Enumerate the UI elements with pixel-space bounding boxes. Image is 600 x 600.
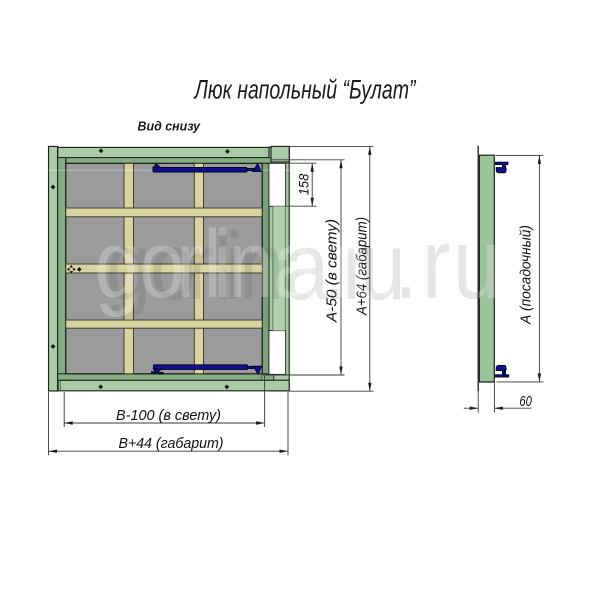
svg-text:Люк напольный “Булат”: Люк напольный “Булат”: [193, 75, 416, 105]
svg-text:Вид снизу: Вид снизу: [138, 118, 201, 133]
svg-text:В-100 (в свету): В-100 (в свету): [116, 407, 221, 424]
svg-text:А (посадочный): А (посадочный): [518, 225, 535, 325]
svg-text:60: 60: [519, 393, 532, 410]
svg-text:158: 158: [295, 174, 311, 196]
svg-text:gorlina.ru: gorlina.ru: [95, 210, 395, 318]
svg-text:В+44 (габарит): В+44 (габарит): [119, 435, 224, 452]
